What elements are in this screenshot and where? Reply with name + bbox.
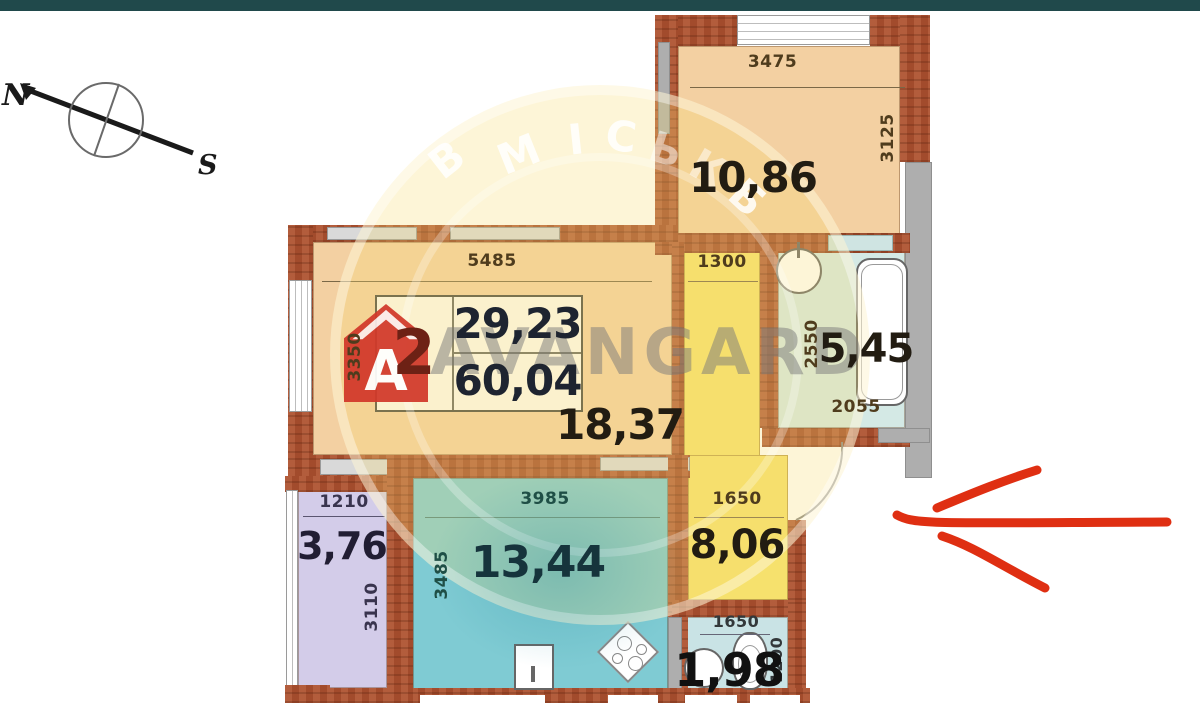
- dimline-1650-hallway: [694, 517, 784, 518]
- living-top-sill-2: [450, 227, 560, 240]
- area-bathroom: 5,45: [806, 328, 926, 370]
- area-bedroom: 10,86: [673, 156, 833, 200]
- floor-plan-screenshot: AVANGARD A В М І С Ь К Б 3475 3125 5485 …: [0, 0, 1200, 703]
- red-arrow-annotation: [880, 430, 1200, 610]
- dim-bedroom-height: 3125: [878, 108, 898, 168]
- dimline-1300: [688, 281, 758, 282]
- area-hallway: 8,06: [677, 524, 797, 566]
- living-top-sill-1: [327, 227, 417, 240]
- dim-living-height: 3350: [345, 327, 365, 387]
- wall-loggia-bottom-pillar: [285, 685, 330, 703]
- dim-kitchen-height: 3485: [432, 545, 452, 605]
- dimline-3475: [690, 87, 905, 88]
- bottom-opening-2: [608, 695, 658, 703]
- dim-wc-width: 1650: [698, 612, 774, 632]
- red-arrow-shaft: [897, 515, 1167, 523]
- bedroom-window: [737, 15, 870, 45]
- emblem-letter-s: С: [598, 112, 643, 163]
- summary-rooms-count: 2: [375, 320, 452, 385]
- dim-loggia-width: 1210: [304, 492, 384, 513]
- emblem-letter-i: І: [554, 115, 599, 165]
- dim-bathroom-width: 2055: [816, 397, 896, 418]
- area-wc: 1,98: [649, 646, 809, 694]
- summary-box-hline: [454, 352, 581, 354]
- room-bedroom: [678, 46, 900, 235]
- top-bar: [0, 0, 1200, 11]
- summary-living-area: 29,23: [452, 302, 583, 346]
- compass-south-label: S: [198, 150, 218, 181]
- wall-corridor-bathroom: [760, 251, 778, 428]
- bathroom-sink-tap-icon: [797, 242, 800, 258]
- kitchen-sink-tap-icon: [531, 666, 535, 682]
- loggia-glazing: [286, 490, 298, 686]
- dimline-1650-wc: [700, 634, 770, 635]
- dim-kitchen-width: 3985: [495, 489, 595, 510]
- red-arrow-lower-barb: [942, 536, 1045, 588]
- compass-needle-line: [94, 84, 119, 156]
- dim-loggia-height: 3110: [362, 577, 382, 637]
- dim-living-width: 5485: [442, 251, 542, 272]
- area-loggia: 3,76: [292, 527, 392, 567]
- emblem-letter-m: М: [491, 126, 545, 184]
- wall-loggia-top: [285, 476, 390, 492]
- emblem-letter-v: В: [417, 130, 477, 191]
- entry-door-swing-arc: [792, 438, 848, 524]
- area-living: 18,37: [545, 403, 695, 447]
- stove-burner-4: [628, 656, 643, 671]
- bedroom-left-panel: [658, 42, 670, 134]
- dim-hallway-width: 1650: [697, 489, 777, 510]
- bottom-opening-1: [420, 695, 545, 703]
- dim-corridor-width: 1300: [684, 252, 760, 273]
- compass: N S: [0, 60, 235, 190]
- dimline-3985: [425, 517, 660, 518]
- stove-burner-1: [617, 636, 632, 651]
- room-corridor: [684, 251, 760, 470]
- dim-bedroom-width: 3475: [720, 52, 825, 73]
- compass-axis-line: [28, 90, 193, 153]
- wall-loggia-kitchen: [387, 455, 413, 703]
- bathroom-door-opening: [828, 235, 893, 251]
- living-window: [289, 280, 312, 412]
- stove-burner-2: [636, 644, 647, 655]
- area-kitchen: 13,44: [458, 540, 618, 586]
- compass-north-label: N: [1, 78, 31, 113]
- dimline-5485: [322, 281, 652, 282]
- stove-burner-3: [612, 653, 623, 664]
- red-arrow-upper-barb: [937, 470, 1037, 508]
- dimline-1210: [303, 516, 385, 517]
- wall-bedroom-right: [900, 15, 930, 162]
- summary-total-area: 60,04: [452, 359, 583, 403]
